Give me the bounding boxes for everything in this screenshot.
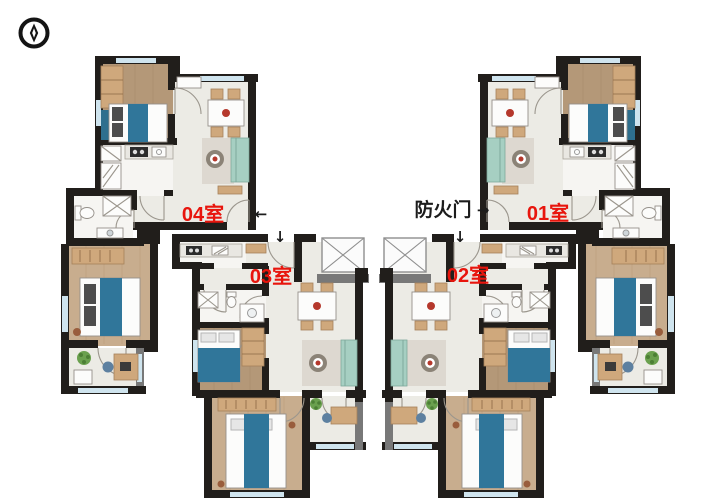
chair (103, 362, 114, 373)
bed-bench (101, 110, 109, 140)
toilet (227, 292, 236, 308)
bath-sink (240, 304, 264, 322)
shower (198, 292, 218, 308)
shoe-cabinet (177, 77, 201, 88)
fire-door-label: 防火门 (414, 198, 471, 221)
bed (109, 104, 167, 142)
shoe-cabinet (246, 244, 266, 253)
desk (331, 407, 357, 424)
bed (226, 414, 286, 488)
arrow-down-icon: ↓ (274, 228, 287, 246)
fridge (101, 146, 121, 161)
bath-sink (97, 228, 123, 238)
sofa (341, 340, 357, 386)
shower (103, 196, 131, 216)
entry-bench (218, 186, 242, 194)
bed (80, 278, 140, 336)
stool (218, 481, 225, 488)
floor-plan-drawing: 04室 03室 02室 01室 防火门 → ← ↓ ↓ (0, 0, 720, 502)
laptop (120, 362, 131, 371)
wardrobe (72, 248, 124, 264)
unit-02-label: 02室 (447, 263, 489, 287)
toilet (75, 206, 94, 220)
plant (77, 351, 91, 365)
arrow-right-icon: → (477, 201, 490, 219)
stool (289, 422, 296, 429)
chair (322, 413, 332, 423)
floor-plan-canvas: 04室 03室 02室 01室 防火门 → ← ↓ ↓ (0, 0, 720, 502)
unit-04-label: 04室 (182, 202, 224, 226)
dish-rack (212, 246, 228, 255)
unit-01-label: 01室 (527, 201, 569, 225)
bed (198, 330, 240, 382)
coffee-table (206, 150, 224, 168)
elevator-shaft (322, 238, 364, 272)
unit-03-label: 03室 (250, 264, 292, 288)
arrow-left-icon: ← (255, 205, 268, 223)
wardrobe (242, 328, 264, 366)
stool (73, 328, 81, 336)
coffee-table (309, 354, 327, 372)
kitchen-cabinet (101, 163, 121, 189)
plant (310, 398, 322, 410)
rug (74, 370, 92, 384)
arrow-down-icon: ↓ (454, 228, 467, 246)
compass-north-icon (21, 20, 48, 47)
wardrobe (101, 66, 123, 108)
stove (186, 246, 202, 255)
sofa (231, 138, 249, 182)
kitchen-sink (152, 147, 166, 157)
wardrobe (218, 398, 276, 411)
stove (130, 147, 148, 157)
